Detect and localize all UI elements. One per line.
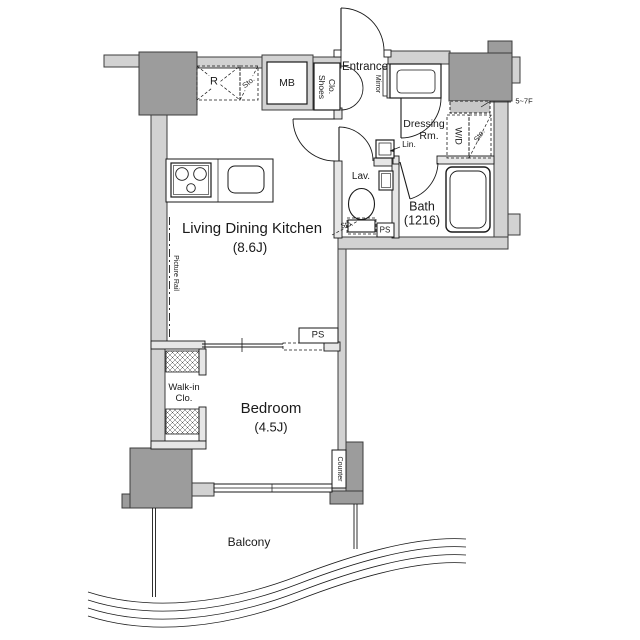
kitchen-sink-icon [228, 166, 264, 193]
shoes-closet-label: Shoes Clo. [317, 75, 337, 99]
lavatory-shelf [379, 171, 393, 190]
dressing-room-label-line1: Dressing [403, 118, 444, 130]
shoes-closet-label-line2: Clo. [327, 75, 337, 99]
pipe-space-bedroom-label: PS [312, 329, 325, 340]
pipe-space-lavatory-label: PS [380, 225, 391, 234]
entrance-label: Entrance [342, 61, 388, 75]
floor-plan: Living Dining Kitchen (8.6J) Bedroom (4.… [0, 0, 640, 640]
bedroom-size: (4.5J) [254, 419, 287, 434]
bathtub-icon [446, 167, 490, 232]
walk-in-closet-label: Walk-in Clo. [168, 382, 199, 404]
balcony-label: Balcony [228, 535, 271, 549]
mirror-label: Mirror [373, 75, 381, 93]
bedroom-label: Bedroom [241, 400, 302, 418]
refrigerator-label: R [209, 76, 219, 89]
floor-range-label: 5~7F [515, 98, 532, 107]
entrance-door [334, 8, 391, 57]
washbasin [390, 64, 441, 98]
kitchen-stove-icon [171, 163, 211, 197]
picture-rail-label: Picture Rail [171, 255, 179, 291]
lavatory-label: Lav. [352, 171, 370, 183]
ldk-room-size: (8.6J) [233, 240, 268, 256]
dressing-room-label-line2: Rm. [419, 130, 438, 142]
floor-range-hatched-wall [450, 101, 490, 113]
linen-closet [376, 140, 400, 158]
bath-label: Bath [409, 200, 435, 215]
ldk-room-label: Living Dining Kitchen [182, 220, 322, 238]
lavatory-door [339, 127, 373, 161]
balcony-dividers [153, 504, 358, 597]
bath-size: (1216) [404, 214, 440, 229]
ldk-door [293, 119, 335, 161]
counter-label: Counter [335, 457, 343, 482]
meter-box-label: MB [279, 77, 295, 89]
washer-dryer-label: W/D [453, 127, 464, 145]
walk-in-closet-label-line2: Clo. [168, 393, 199, 404]
bath-door [400, 162, 438, 199]
linen-label: Lin. [402, 139, 416, 149]
balcony-railing [88, 539, 466, 627]
bedroom-window [214, 484, 332, 492]
walk-in-closet-label-line1: Walk-in [168, 382, 199, 393]
shoes-closet-label-line1: Shoes [317, 75, 327, 99]
